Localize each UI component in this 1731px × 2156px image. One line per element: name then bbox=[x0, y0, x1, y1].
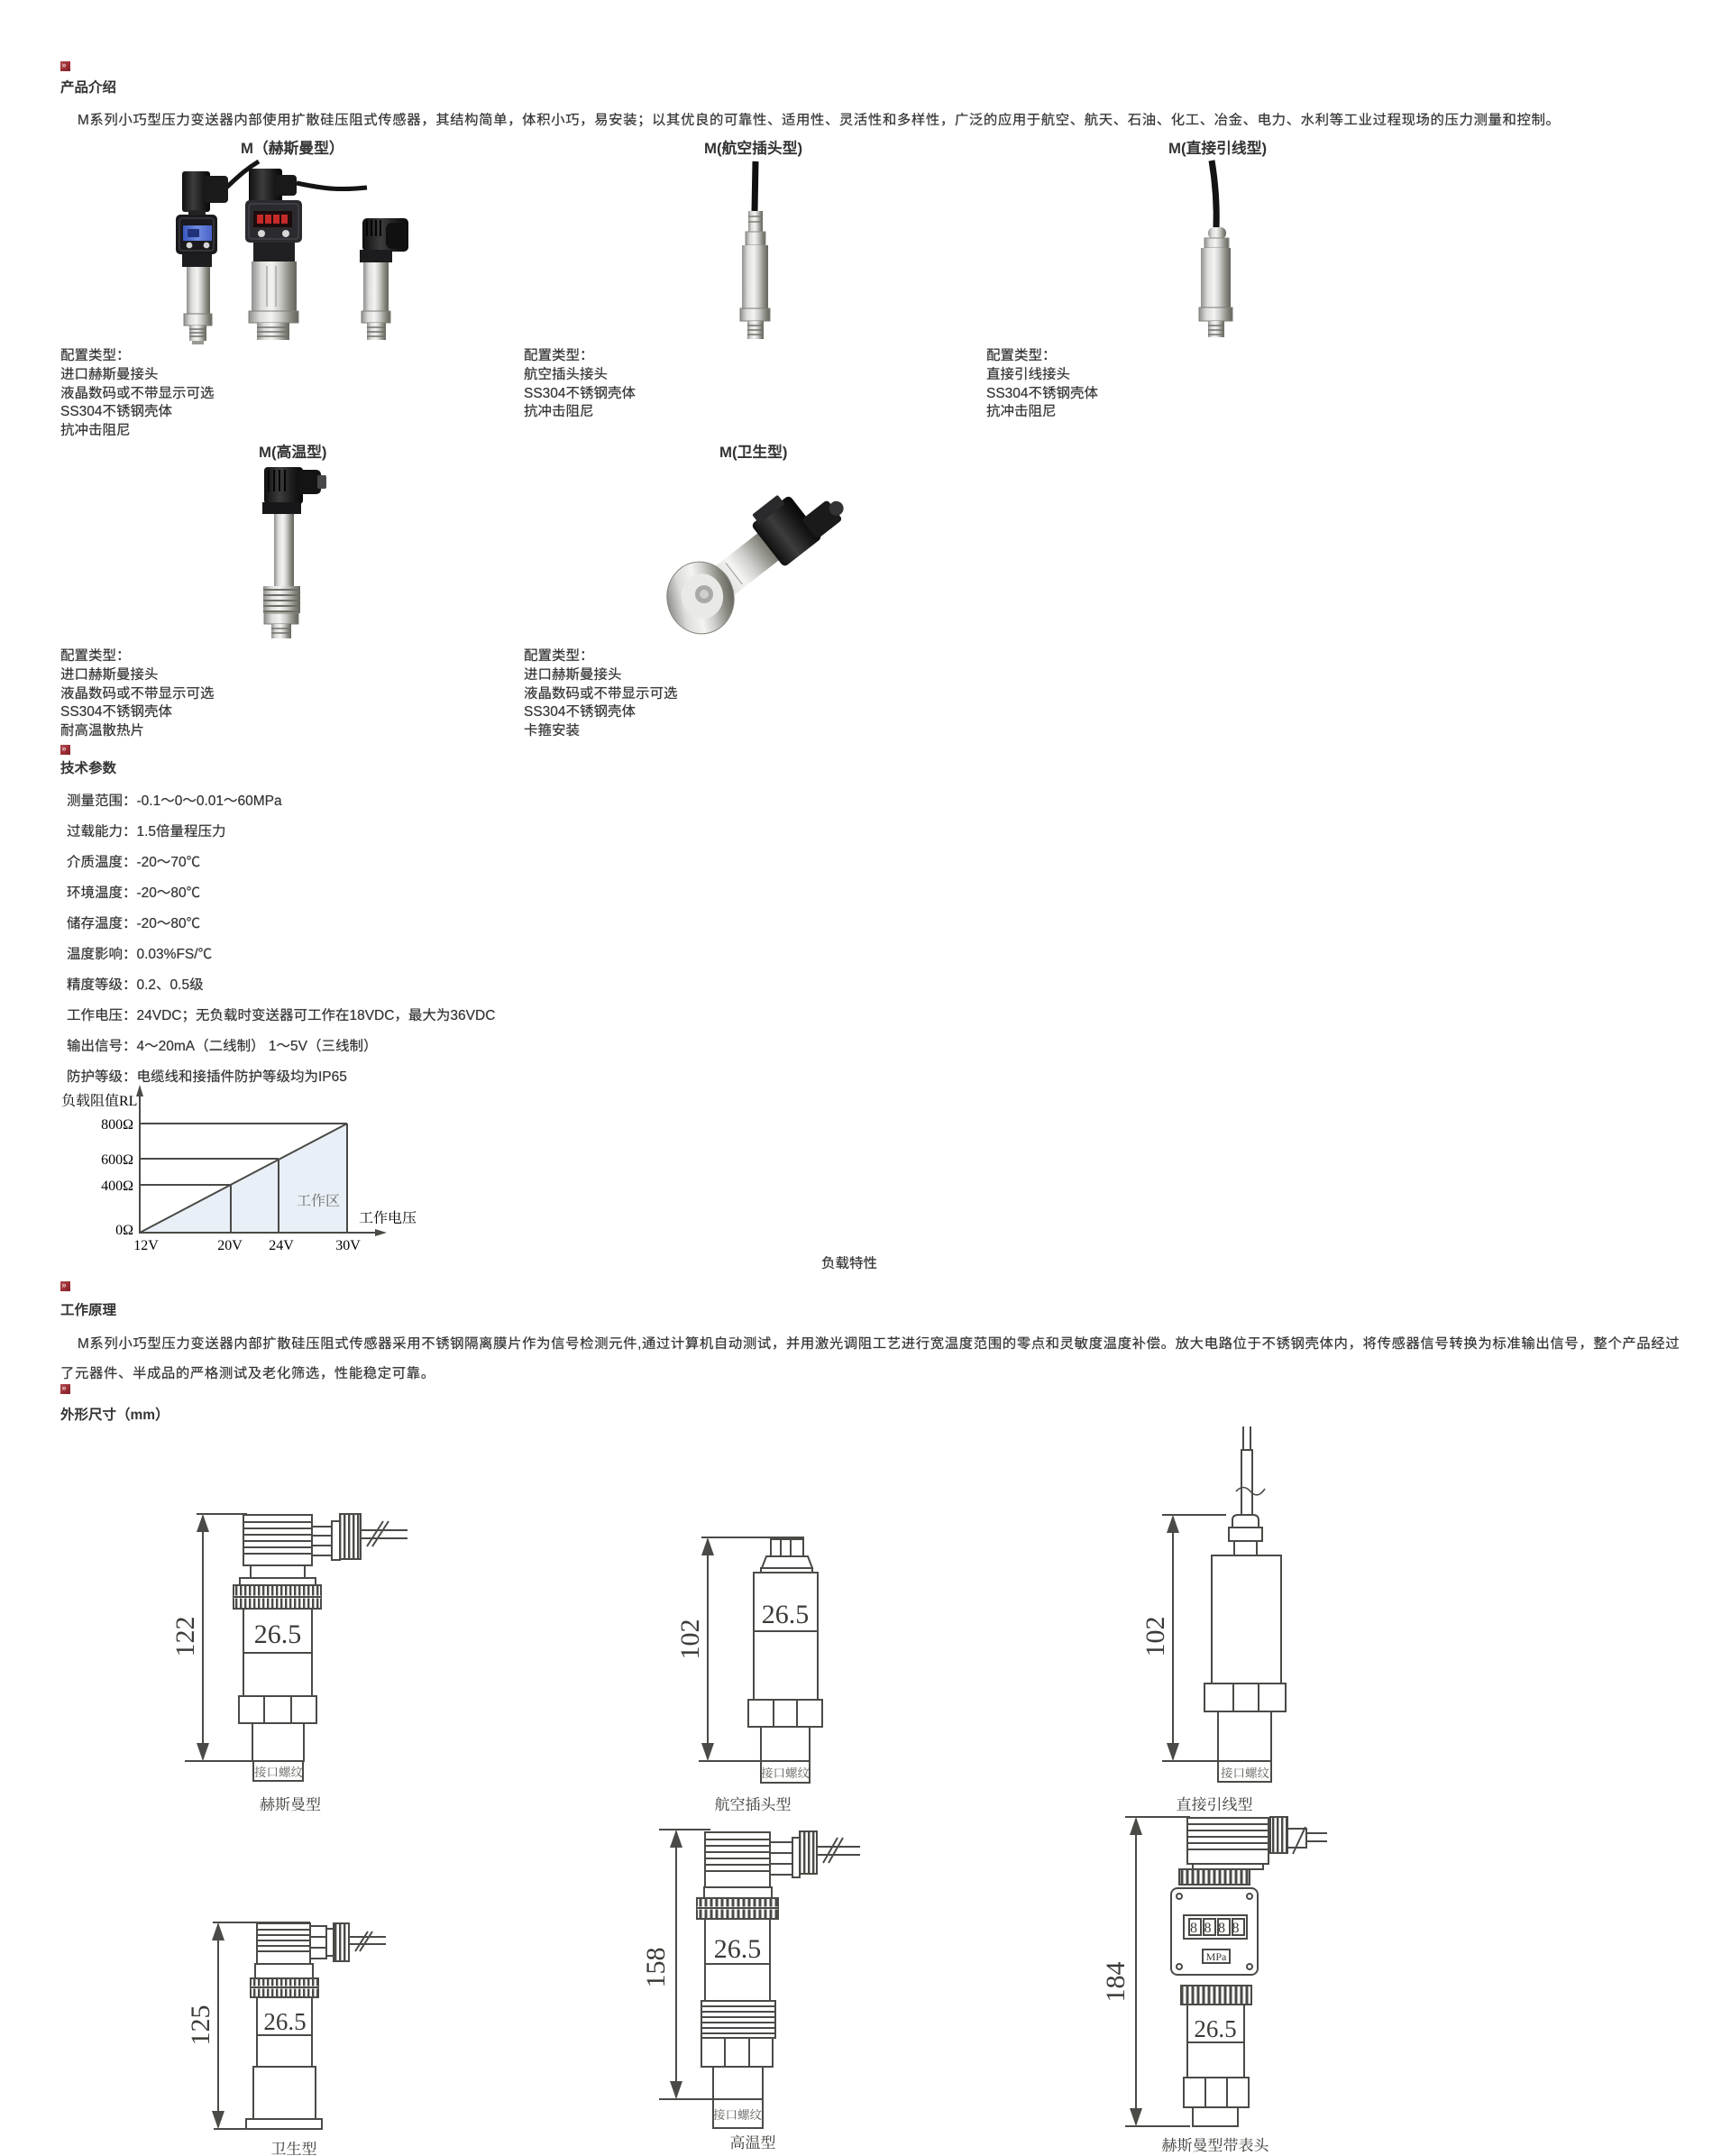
svg-text:30V: 30V bbox=[335, 1238, 361, 1253]
svg-text:26.5: 26.5 bbox=[714, 1934, 762, 1964]
svg-text:102: 102 bbox=[1140, 1617, 1170, 1657]
svg-text:工作区: 工作区 bbox=[297, 1193, 340, 1209]
svg-text:MPa: MPa bbox=[1206, 1950, 1227, 1963]
svg-text:接口螺纹: 接口螺纹 bbox=[713, 2108, 762, 2122]
svg-text:航空插头型: 航空插头型 bbox=[715, 1796, 792, 1813]
svg-text:卫生型: 卫生型 bbox=[271, 2141, 317, 2156]
svg-text:400Ω: 400Ω bbox=[101, 1179, 133, 1194]
svg-text:高温型: 高温型 bbox=[730, 2134, 776, 2151]
svg-text:26.5: 26.5 bbox=[762, 1600, 810, 1629]
svg-text:158: 158 bbox=[641, 1948, 671, 1988]
svg-text:8888: 8888 bbox=[1190, 1921, 1246, 1936]
svg-text:122: 122 bbox=[170, 1617, 200, 1657]
svg-text:接口螺纹: 接口螺纹 bbox=[761, 1766, 810, 1780]
svg-text:20V: 20V bbox=[217, 1238, 243, 1253]
svg-text:工作电压: 工作电压 bbox=[359, 1210, 417, 1226]
svg-text:24V: 24V bbox=[269, 1238, 294, 1253]
svg-text:接口螺纹: 接口螺纹 bbox=[254, 1766, 303, 1779]
svg-text:26.5: 26.5 bbox=[263, 2008, 306, 2035]
svg-text:102: 102 bbox=[675, 1619, 705, 1660]
svg-text:赫斯曼型带表头: 赫斯曼型带表头 bbox=[1162, 2137, 1270, 2154]
svg-text:12V: 12V bbox=[133, 1238, 159, 1253]
svg-text:26.5: 26.5 bbox=[254, 1619, 302, 1649]
svg-text:26.5: 26.5 bbox=[1194, 2015, 1236, 2042]
svg-text:负载阻值RL: 负载阻值RL bbox=[61, 1093, 137, 1109]
svg-text:184: 184 bbox=[1101, 1962, 1131, 2003]
svg-text:0Ω: 0Ω bbox=[115, 1223, 133, 1238]
svg-text:赫斯曼型: 赫斯曼型 bbox=[260, 1796, 321, 1813]
svg-text:125: 125 bbox=[186, 2005, 215, 2046]
svg-text:600Ω: 600Ω bbox=[101, 1152, 133, 1168]
svg-text:800Ω: 800Ω bbox=[101, 1117, 133, 1133]
svg-text:接口螺纹: 接口螺纹 bbox=[1221, 1766, 1269, 1780]
svg-text:直接引线型: 直接引线型 bbox=[1177, 1796, 1253, 1813]
